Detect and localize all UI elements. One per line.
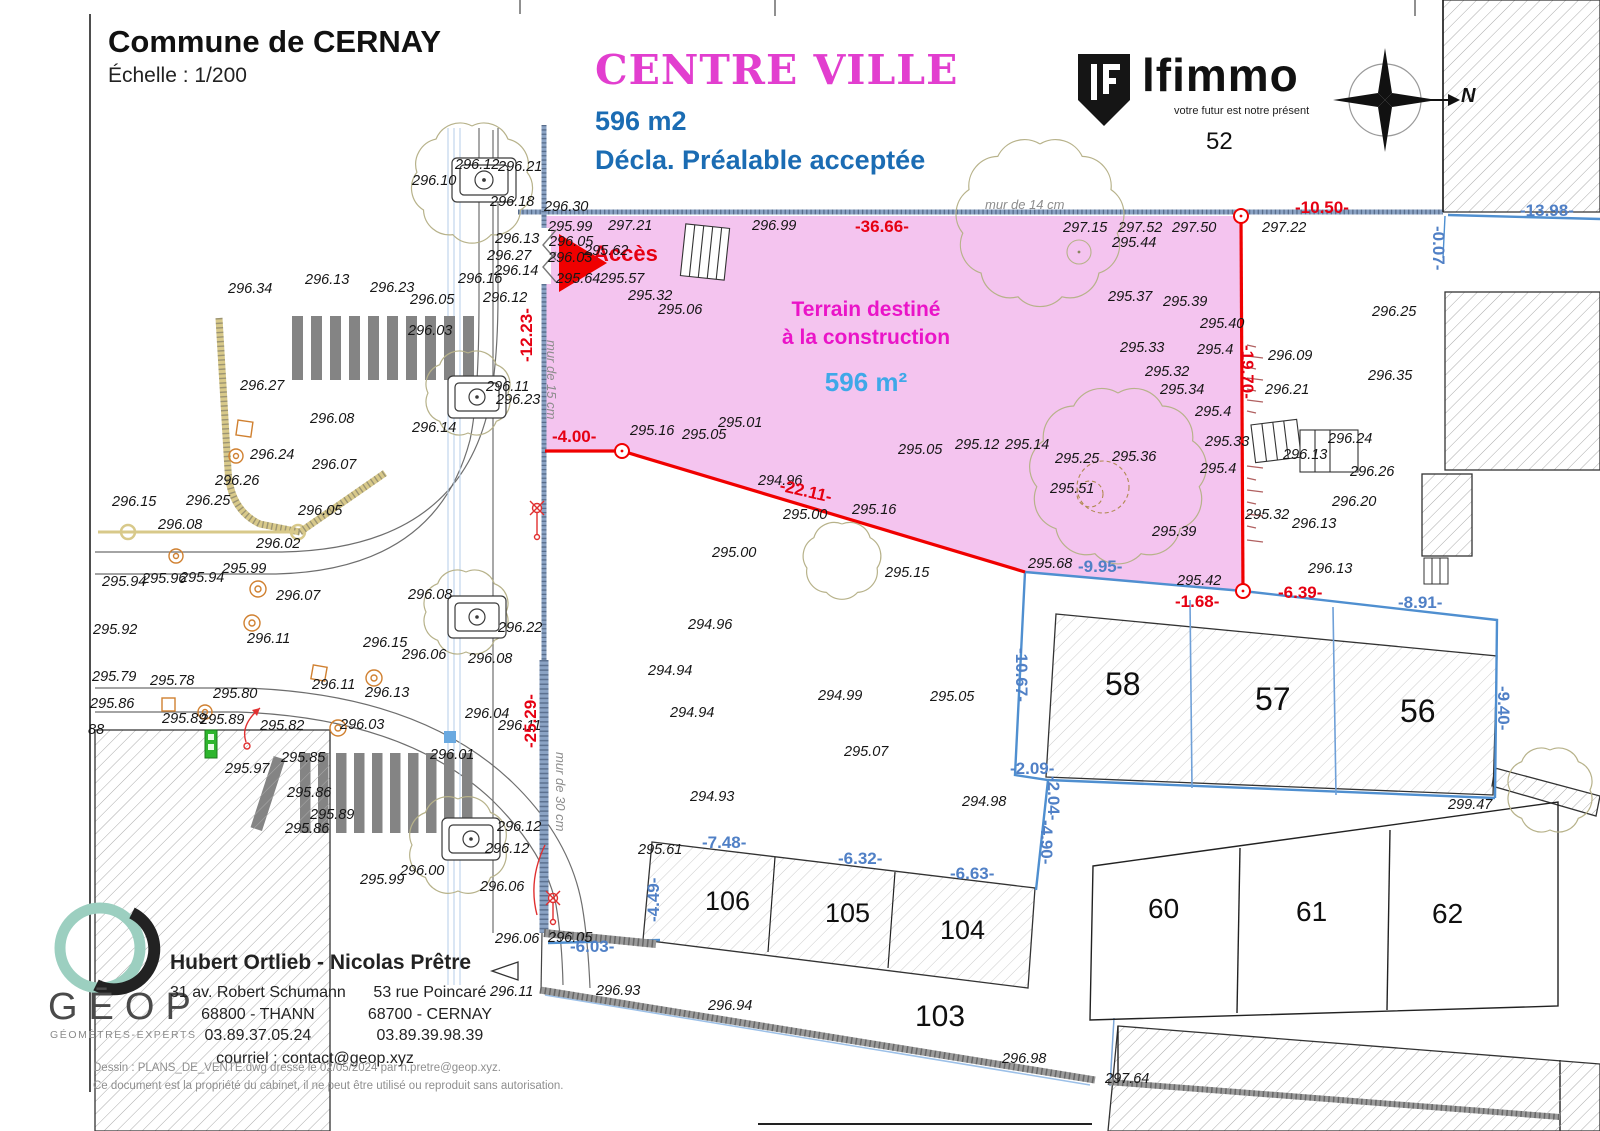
cadastral-plan: Commune de CERNAY Échelle : 1/200 CENTRE… [0, 0, 1600, 1131]
dimension-blue-label: -7.48- [702, 834, 746, 851]
elevation-point-label: 296.25 [1372, 305, 1416, 320]
dimension-blue-label: -9.95- [1078, 558, 1122, 575]
elevation-point-label: 294.94 [648, 664, 692, 679]
elevation-point-label: 296.05 [410, 293, 454, 308]
elevation-point-label: 296.13 [305, 273, 349, 288]
elevation-point-label: 296.15 [112, 495, 156, 510]
elevation-point-label: 296.26 [215, 474, 259, 489]
elevation-point-label: 295.44 [1112, 236, 1156, 251]
elevation-point-label: 296.11 [312, 678, 355, 693]
dimension-blue-label: -2.04- [1045, 776, 1062, 820]
dimension-red-label: -1.68- [1175, 593, 1219, 610]
elevation-point-label: 296.11 [490, 985, 533, 1000]
dimension-blue-label: -4.90- [1038, 820, 1055, 864]
elevation-point-label: 295.14 [1005, 438, 1049, 453]
elevation-point-label: 296.12 [485, 842, 529, 857]
dimension-red-label: -25.29- [522, 694, 539, 748]
dimension-red-label: -10.50- [1295, 199, 1349, 216]
wall-label: mur de 30 cm [554, 752, 567, 831]
elevation-point-label: 295.78 [150, 674, 194, 689]
elevation-point-label: 297.15 [1063, 221, 1107, 236]
elevation-point-label: 294.96 [688, 618, 732, 633]
elevation-point-label: 295.33 [1205, 435, 1249, 450]
elevation-point-label: 297.22 [1262, 221, 1306, 236]
elevation-point-label: 297.52 [1118, 221, 1162, 236]
parcel-number-label: 56 [1400, 695, 1436, 727]
dimension-blue-label: -4.49- [645, 878, 662, 922]
elevation-point-label: 295.68 [1028, 557, 1072, 572]
elevation-point-label: 296.12 [483, 291, 527, 306]
elevation-point-label: 295.97 [225, 762, 269, 777]
dimension-red-label: -36.66- [855, 218, 909, 235]
elevation-point-label: 296.21 [498, 160, 542, 175]
elevation-point-label: 296.03 [408, 324, 452, 339]
elevation-point-label: 295.99 [548, 220, 592, 235]
elevation-point-label: 295.25 [1055, 452, 1099, 467]
dimension-red-label: -22.11- [778, 477, 833, 505]
parcel-number-label: 57 [1255, 683, 1291, 715]
elevation-point-label: 294.98 [962, 795, 1006, 810]
elevation-point-label: 295.06 [658, 303, 702, 318]
parcel-number-label: 105 [825, 900, 870, 927]
elevation-point-label: 295.05 [930, 690, 974, 705]
elevation-point-label: 295.40 [1200, 317, 1244, 332]
parcel-number-label: 104 [940, 917, 985, 944]
elevation-point-label: 295.16 [852, 503, 896, 518]
elevation-point-label: 296.03 [548, 251, 592, 266]
dimension-blue-label: -6.32- [838, 850, 882, 867]
dimension-blue-label: -6.03- [570, 938, 614, 955]
elevation-point-label: 295.99 [360, 873, 404, 888]
elevation-point-label: 296.18 [490, 195, 534, 210]
elevation-point-label: 296.10 [412, 174, 456, 189]
parcel-number-label: 106 [705, 888, 750, 915]
parcel-number-label: 60 [1148, 895, 1179, 923]
elevation-point-label: 296.06 [495, 932, 539, 947]
wall-label: mur de 14 cm [985, 198, 1064, 211]
dimension-blue-label: -10.67- [1013, 648, 1030, 702]
elevation-point-label: 296.16 [458, 272, 502, 287]
elevation-point-label: 296.06 [402, 648, 446, 663]
elevation-point-label: 295.32 [1145, 365, 1189, 380]
elevation-point-label: 296.13 [495, 232, 539, 247]
elevation-point-label: 296.20 [1332, 495, 1376, 510]
dimension-blue-label: -13.98- [1520, 202, 1574, 219]
elevation-point-label: 296.09 [1268, 349, 1312, 364]
elevation-point-label: 297.21 [608, 219, 652, 234]
elevation-point-label: 296.07 [312, 458, 356, 473]
elevation-point-label: 295.57 [600, 272, 644, 287]
elevation-point-label: 296.30 [544, 200, 588, 215]
elevation-point-label: 295.12 [955, 438, 999, 453]
parcel-number-label: 62 [1432, 900, 1463, 928]
elevation-point-label: 295.64 [556, 272, 600, 287]
elevation-point-label: 296.13 [1308, 562, 1352, 577]
elevation-point-label: 295.4 [1200, 462, 1236, 477]
elevation-point-label: 294.94 [670, 706, 714, 721]
elevation-point-label: 295.51 [1050, 482, 1094, 497]
dimension-blue-label: -6.63- [950, 865, 994, 882]
elevation-point-label: 296.23 [496, 393, 540, 408]
elevation-point-label: 295.94 [180, 571, 224, 586]
elevation-point-label: 295.34 [1160, 383, 1204, 398]
elevation-point-label: 295.80 [213, 687, 257, 702]
elevation-point-label: 295.89 [200, 713, 244, 728]
elevation-point-label: 297.64 [1105, 1072, 1149, 1087]
dimension-blue-label: -0.07- [1430, 226, 1447, 270]
elevation-point-label: 295.4 [1197, 343, 1233, 358]
elevation-point-label: 296.06 [480, 880, 524, 895]
elevation-point-label: 296.12 [455, 158, 499, 173]
elevation-point-label: 295.00 [712, 546, 756, 561]
elevation-point-label: 296.08 [310, 412, 354, 427]
dimension-blue-label: -9.40- [1495, 686, 1512, 730]
dimension-blue-label: -2.09- [1010, 760, 1054, 777]
elevation-point-label: 295.92 [93, 623, 137, 638]
elevation-point-label: 295.16 [630, 424, 674, 439]
dimension-red-label: -4.00- [552, 428, 596, 445]
elevation-point-label: 296.02 [256, 537, 300, 552]
point-labels-layer: 296.12296.21296.10296.18296.30295.99297.… [0, 0, 1600, 1131]
elevation-point-label: 296.35 [1368, 369, 1412, 384]
dimension-red-label: -19.70- [1239, 345, 1256, 399]
elevation-point-label: 296.08 [468, 652, 512, 667]
elevation-point-label: 296.08 [158, 518, 202, 533]
elevation-point-label: 296.12 [497, 820, 541, 835]
elevation-point-label: 295.39 [1163, 295, 1207, 310]
elevation-point-label: 295.39 [1152, 525, 1196, 540]
elevation-point-label: 296.05 [298, 504, 342, 519]
elevation-point-label: 295.42 [1177, 574, 1221, 589]
wall-label: mur de 15 cm [545, 340, 558, 419]
elevation-point-label: 296.25 [186, 494, 230, 509]
elevation-point-label: 296.27 [240, 379, 284, 394]
elevation-point-label: 296.13 [1292, 517, 1336, 532]
elevation-point-label: 296.24 [1328, 432, 1372, 447]
elevation-point-label: 296.13 [1283, 448, 1327, 463]
elevation-point-label: 296.22 [498, 621, 542, 636]
elevation-point-label: 295.85 [281, 751, 325, 766]
elevation-point-label: 295.36 [1112, 450, 1156, 465]
elevation-point-label: 296.14 [412, 421, 456, 436]
elevation-point-label: 295.86 [90, 697, 134, 712]
elevation-point-label: 295.61 [638, 843, 682, 858]
elevation-point-label: 299.47 [1448, 798, 1492, 813]
elevation-point-label: 296.03 [340, 718, 384, 733]
elevation-point-label: 295.32 [1245, 508, 1289, 523]
elevation-point-label: 295.33 [1120, 341, 1164, 356]
elevation-point-label: 295.86 [285, 822, 329, 837]
elevation-point-label: 296.13 [365, 686, 409, 701]
parcel-number-label: 103 [915, 1002, 965, 1032]
elevation-point-label: 295.79 [92, 670, 136, 685]
dimension-red-label: -6.39- [1278, 584, 1322, 601]
elevation-point-label: 296.27 [487, 249, 531, 264]
elevation-point-label: 295.86 [287, 786, 331, 801]
elevation-point-label: 296.98 [1002, 1052, 1046, 1067]
elevation-point-label: 296.01 [430, 748, 474, 763]
elevation-point-label: 295.15 [885, 566, 929, 581]
elevation-point-label: 88 [88, 723, 104, 738]
elevation-point-label: 295.82 [260, 719, 304, 734]
parcel-number-label: 58 [1105, 668, 1141, 700]
elevation-point-label: 296.07 [276, 589, 320, 604]
dimension-red-label: -12.23- [518, 308, 535, 362]
parcel-number-label: 61 [1296, 898, 1327, 926]
elevation-point-label: 294.99 [818, 689, 862, 704]
elevation-point-label: 295.37 [1108, 290, 1152, 305]
elevation-point-label: 296.21 [1265, 383, 1309, 398]
elevation-point-label: 295.4 [1195, 405, 1231, 420]
elevation-point-label: 296.15 [363, 636, 407, 651]
elevation-point-label: 296.08 [408, 588, 452, 603]
elevation-point-label: 295.00 [783, 508, 827, 523]
elevation-point-label: 295.05 [898, 443, 942, 458]
dimension-blue-label: -8.91- [1398, 594, 1442, 611]
elevation-point-label: 295.07 [844, 745, 888, 760]
elevation-point-label: 295.01 [718, 416, 762, 431]
elevation-point-label: 296.34 [228, 282, 272, 297]
elevation-point-label: 296.23 [370, 281, 414, 296]
elevation-point-label: 295.99 [222, 562, 266, 577]
elevation-point-label: 296.00 [400, 864, 444, 879]
elevation-point-label: 295.94 [102, 575, 146, 590]
elevation-point-label: 296.99 [752, 219, 796, 234]
elevation-point-label: 297.50 [1172, 221, 1216, 236]
elevation-point-label: 296.24 [250, 448, 294, 463]
elevation-point-label: 296.26 [1350, 465, 1394, 480]
elevation-point-label: 296.11 [247, 632, 290, 647]
elevation-point-label: 296.93 [596, 984, 640, 999]
elevation-point-label: 294.93 [690, 790, 734, 805]
elevation-point-label: 296.94 [708, 999, 752, 1014]
